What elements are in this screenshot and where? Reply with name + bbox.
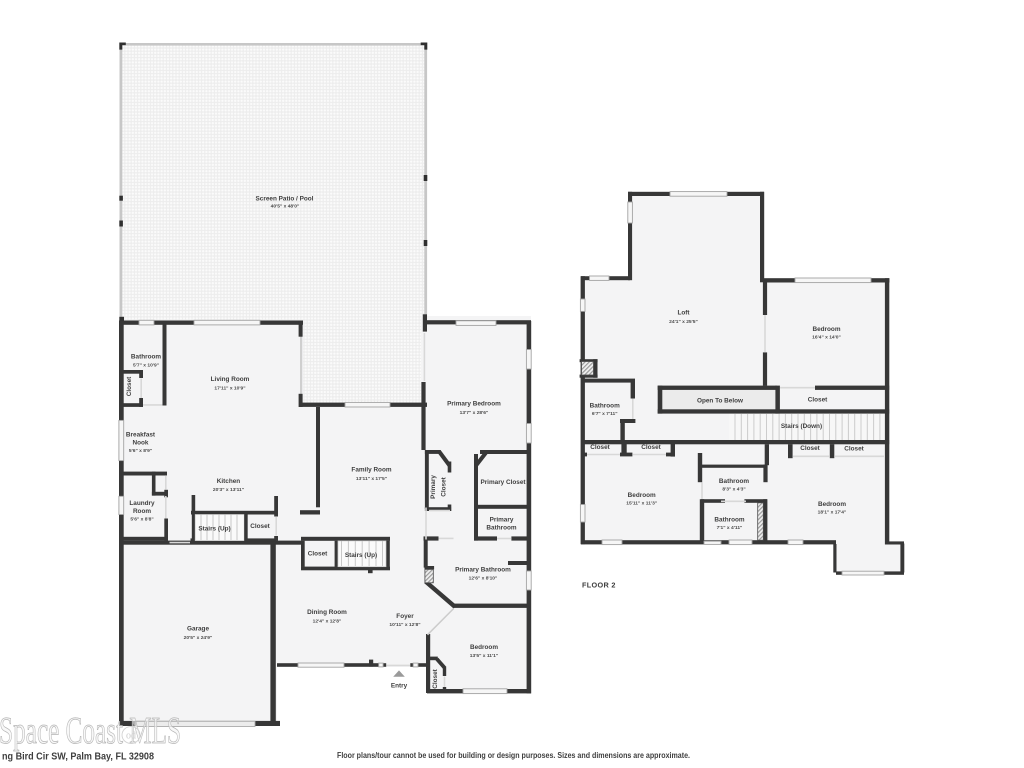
svg-text:Closet: Closet [432,668,439,688]
svg-text:Closet: Closet [250,523,270,530]
svg-text:Primary Bedroom: Primary Bedroom [447,401,501,408]
svg-text:20'5" x 24'9": 20'5" x 24'9" [184,635,213,641]
svg-text:20'3" x 13'11": 20'3" x 13'11" [213,487,244,493]
svg-text:6'7" x 7'11": 6'7" x 7'11" [592,411,618,417]
svg-text:13'7" x 28'6": 13'7" x 28'6" [460,410,489,416]
svg-text:12'4" x 12'8": 12'4" x 12'8" [313,619,342,625]
svg-text:Stairs (Up): Stairs (Up) [345,552,377,559]
svg-text:8'3" x 4'3": 8'3" x 4'3" [722,487,745,493]
svg-text:5'6" x 8'9": 5'6" x 8'9" [129,448,152,454]
svg-text:Bathroom: Bathroom [714,517,744,524]
svg-text:Foyer: Foyer [396,613,414,620]
svg-text:10'11" x 12'8": 10'11" x 12'8" [389,622,420,628]
svg-text:Breakfast: Breakfast [126,432,156,439]
svg-text:Bedroom: Bedroom [818,501,846,508]
svg-text:5'7" x 10'9": 5'7" x 10'9" [133,363,159,369]
svg-text:Stairs (Up): Stairs (Up) [198,526,230,533]
svg-text:Primary Closet: Primary Closet [480,479,526,486]
svg-text:17'11" x 10'9": 17'11" x 10'9" [214,386,245,392]
svg-text:Bathroom: Bathroom [590,403,620,410]
svg-text:Closet: Closet [441,476,448,496]
svg-text:16'4" x 14'0": 16'4" x 14'0" [812,335,841,341]
svg-text:Open To Below: Open To Below [697,398,743,405]
svg-text:Kitchen: Kitchen [217,478,241,485]
svg-text:Laundry: Laundry [129,500,155,507]
svg-text:Closet: Closet [590,444,610,451]
svg-text:7'1" x 4'11": 7'1" x 4'11" [717,525,743,531]
svg-text:eSpace Coast MLS: eSpace Coast MLS [0,710,181,752]
svg-text:Loft: Loft [677,310,690,317]
svg-text:Primary: Primary [490,517,514,524]
svg-text:Bedroom: Bedroom [470,644,498,651]
svg-text:Primary: Primary [430,475,437,499]
svg-text:Stairs (Down): Stairs (Down) [781,423,822,430]
svg-text:Room: Room [133,508,151,515]
svg-text:Closet: Closet [308,551,328,558]
svg-text:Closet: Closet [641,444,661,451]
svg-text:Primary Bathroom: Primary Bathroom [455,567,511,574]
svg-text:Entry: Entry [391,683,408,690]
svg-text:13'11" x 17'5": 13'11" x 17'5" [356,476,387,482]
svg-text:13'5" x 11'1": 13'5" x 11'1" [470,653,498,659]
svg-text:Bathroom: Bathroom [719,478,749,485]
svg-text:ng Bird Cir SW, Palm Bay, FL 3: ng Bird Cir SW, Palm Bay, FL 32908 [2,751,154,763]
svg-text:FLOOR 2: FLOOR 2 [582,581,616,590]
svg-text:12'6" x 8'10": 12'6" x 8'10" [469,576,498,582]
svg-text:Closet: Closet [808,397,828,404]
svg-text:18'1" x 17'4": 18'1" x 17'4" [818,510,847,516]
svg-text:Closet: Closet [126,376,133,396]
svg-text:Floor plans/tour cannot be use: Floor plans/tour cannot be used for buil… [337,751,690,760]
svg-text:Closet: Closet [800,445,820,452]
svg-text:Family Room: Family Room [351,467,391,474]
svg-text:od: od [126,731,136,742]
svg-text:Bathroom: Bathroom [131,354,161,361]
svg-text:Bedroom: Bedroom [812,326,840,333]
svg-text:Dining Room: Dining Room [307,609,347,616]
svg-text:15'11" x 11'3": 15'11" x 11'3" [626,501,657,507]
svg-text:Garage: Garage [187,626,209,633]
svg-text:24'1" x 25'5": 24'1" x 25'5" [669,319,698,325]
svg-text:5'6" x 8'8": 5'6" x 8'8" [130,517,153,523]
svg-text:Bedroom: Bedroom [628,492,656,499]
svg-text:Bathroom: Bathroom [486,525,516,532]
svg-text:40'5" x 48'0": 40'5" x 48'0" [271,204,300,210]
svg-text:Closet: Closet [844,445,864,452]
svg-text:Nook: Nook [133,440,149,447]
svg-text:Living Room: Living Room [211,376,250,383]
svg-text:Screen Patio / Pool: Screen Patio / Pool [256,196,314,203]
